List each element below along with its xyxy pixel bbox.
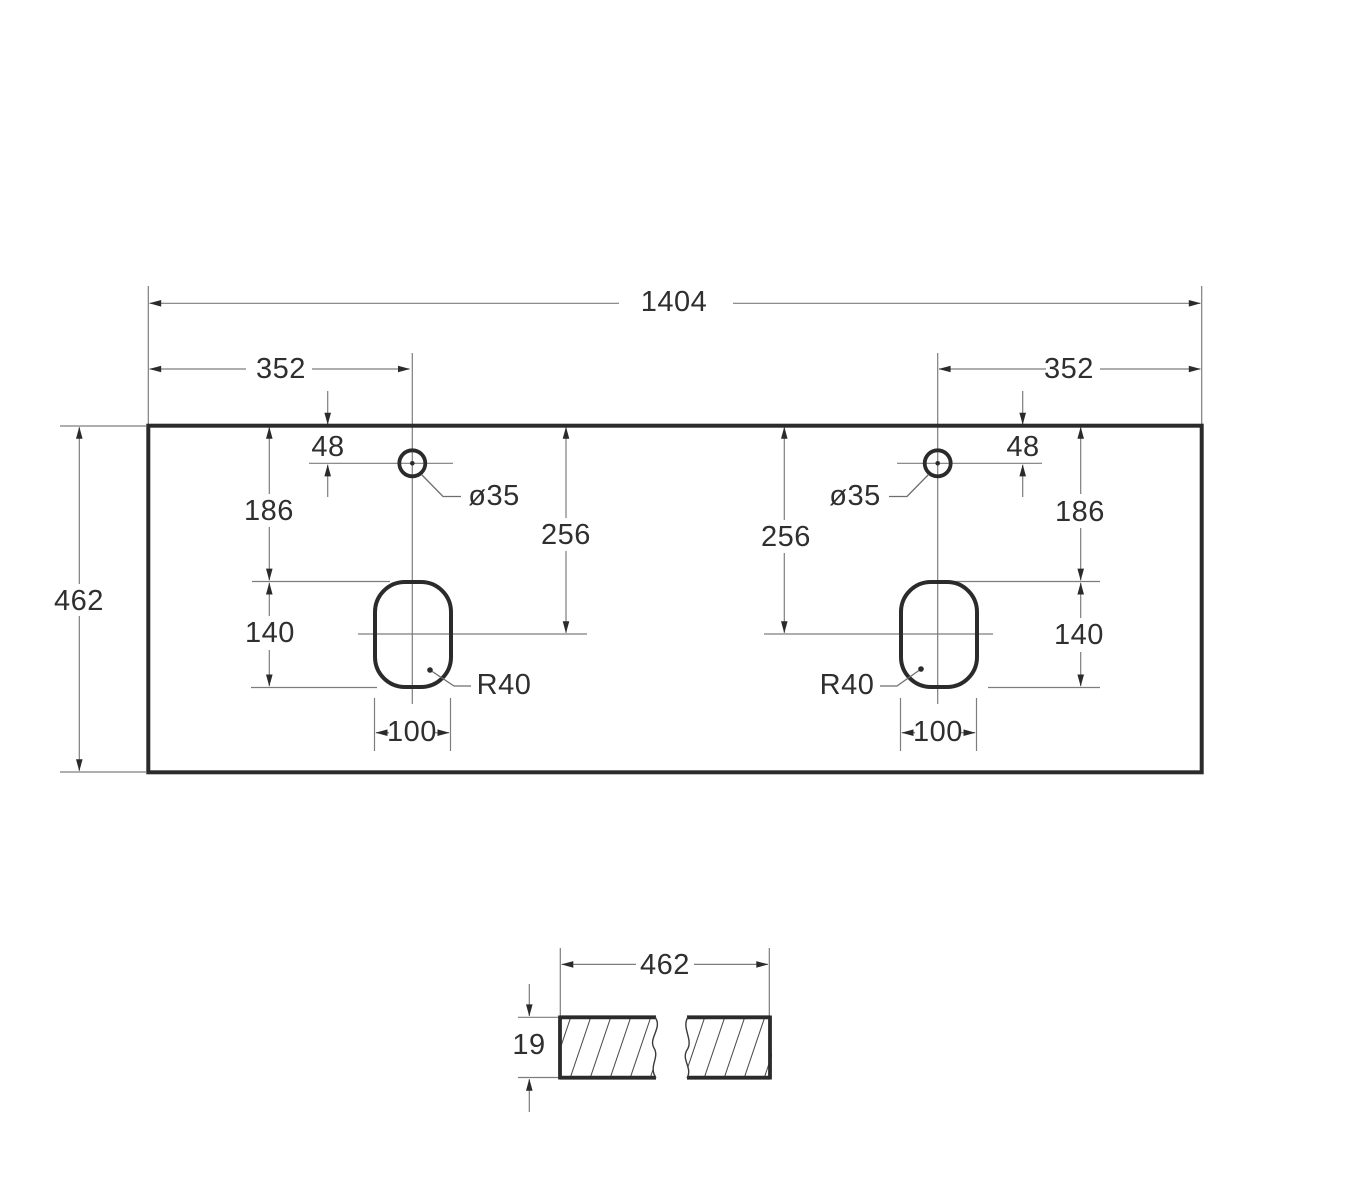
dim-right-140-label: 140: [1054, 619, 1104, 651]
dim-left-hole-dia-label: ø35: [468, 480, 519, 512]
dim-right-faucet-offset-label: 352: [1044, 353, 1094, 385]
section-bar-right: [644, 1016, 785, 1080]
dim-overall-width-label: 1404: [641, 286, 708, 318]
dim-right-100-label: 100: [913, 716, 963, 748]
technical-drawing-page: 1404 462 352 352 48 48 ø35 ø35 186 186 2…: [0, 0, 1350, 1200]
dim-right-256-label: 256: [761, 521, 811, 553]
dim-right-48-label: 48: [1006, 431, 1039, 463]
dim-left-48-label: 48: [311, 431, 344, 463]
section-dimension-lines: [529, 964, 768, 1112]
dim-right-186-label: 186: [1055, 496, 1105, 528]
dim-left-186-label: 186: [244, 495, 294, 527]
section-view: 462 19: [510, 948, 785, 1112]
dimension-lines: [79, 303, 1200, 771]
dim-left-140-label: 140: [245, 617, 295, 649]
plan-view: 1404 462 352 352 48 48 ø35 ø35 186 186 2…: [54, 286, 1202, 772]
dim-overall-depth-label: 462: [54, 585, 104, 617]
dim-right-r40-label: R40: [820, 669, 875, 701]
countertop-outline: [148, 426, 1201, 773]
dim-left-100-label: 100: [387, 716, 437, 748]
dim-left-r40-label: R40: [477, 669, 532, 701]
dim-left-faucet-offset-label: 352: [256, 353, 306, 385]
extension-lines: [60, 286, 1202, 772]
dim-section-thickness-label: 19: [512, 1029, 545, 1061]
countertop-dimension-drawing: 1404 462 352 352 48 48 ø35 ø35 186 186 2…: [0, 0, 1350, 1200]
dim-left-256-label: 256: [541, 519, 591, 551]
dim-right-hole-dia-label: ø35: [829, 480, 880, 512]
dim-section-depth-label: 462: [640, 949, 690, 981]
